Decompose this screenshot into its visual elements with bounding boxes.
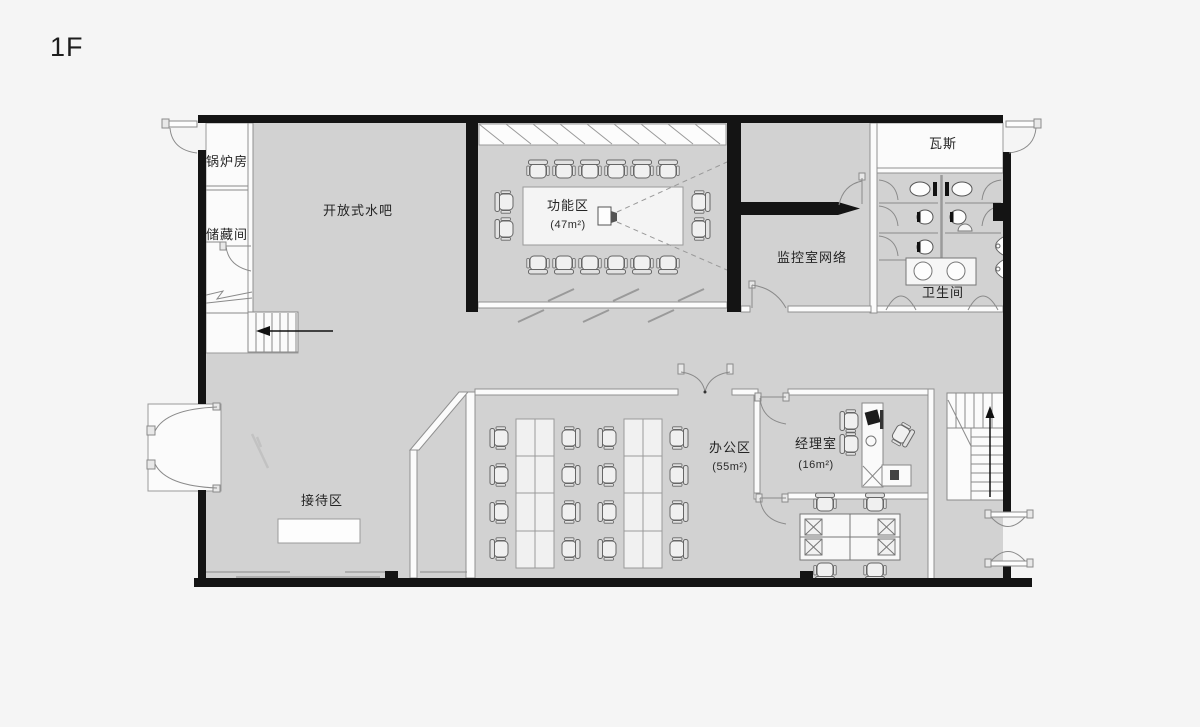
chair-icon [579,160,601,178]
chair-icon [495,218,513,240]
chair-icon [864,493,886,511]
conference-sliding-track [478,302,727,308]
room-label-water-bar: 开放式水吧 [323,203,393,218]
sink-icon [947,262,965,280]
chair-icon [527,256,549,274]
chair-icon [605,256,627,274]
monitor-icon [880,410,884,429]
room-area-office: (55m²) [712,461,747,473]
room-label-office: 办公区 [709,440,751,455]
chair-icon [598,538,616,560]
floor-plan-canvas: 1F [0,0,1200,727]
room-label-manager: 经理室 [795,436,837,451]
chair-icon [840,410,858,432]
room-label-monitor: 监控室网络 [777,250,847,265]
toilet-icon [950,210,966,224]
chair-icon [657,256,679,274]
room-label-boiler: 锅炉房 [206,154,248,169]
chair-icon [670,538,688,560]
meeting-set [800,514,900,560]
chair-icon [692,218,710,240]
chair-icon [631,160,653,178]
chair-icon [598,427,616,449]
chair-icon [490,464,508,486]
chair-icon [598,501,616,523]
chair-icon [840,433,858,455]
chair-icon [490,538,508,560]
chair-icon [598,464,616,486]
chair-icon [527,160,549,178]
chair-icon [495,191,513,213]
room-area-function-area: (47m²) [550,219,585,231]
chair-icon [670,427,688,449]
room-label-restroom: 卫生间 [922,285,964,300]
chair-icon [605,160,627,178]
stairs-right [947,393,1005,500]
conference-wall-left [466,115,478,312]
room-label-storage: 储藏间 [206,227,248,242]
reception-zone [278,519,360,543]
sink-icon [914,262,932,280]
reception-desk [278,519,360,543]
cabinet-hatch-band [479,124,726,145]
floor-plan-drawing: 锅炉房 储藏间 开放式水吧 功能区 (47m²) 瓦斯 监控室网络 卫生间 接待… [0,0,1200,727]
chair-icon [553,256,575,274]
chair-icon [562,538,580,560]
chair-icon [553,160,575,178]
entrance-vestibule [148,404,221,491]
room-label-gas: 瓦斯 [929,136,957,151]
chair-icon [670,464,688,486]
chair-icon [657,160,679,178]
toilet-icon [917,240,933,254]
chair-icon [562,464,580,486]
chair-icon [562,427,580,449]
chair-icon [670,501,688,523]
toilet-icon [910,182,930,196]
monitor-room-wall [741,202,860,215]
toilet-icon [952,182,972,196]
chair-icon [692,191,710,213]
room-area-manager: (16m²) [798,459,833,471]
chair-icon [814,493,836,511]
printer-icon [890,470,899,480]
toilet-icon [917,210,933,224]
conference-wall-right [727,115,741,312]
room-label-reception: 接待区 [301,493,343,508]
room-label-function-area: 功能区 [547,198,589,213]
chair-icon [562,501,580,523]
shaft-block [993,203,1005,221]
chair-icon [490,427,508,449]
chair-icon [631,256,653,274]
chair-icon [490,501,508,523]
exterior-door-top-right [1006,119,1041,153]
exterior-door-top-left [162,119,197,153]
chair-icon [579,256,601,274]
